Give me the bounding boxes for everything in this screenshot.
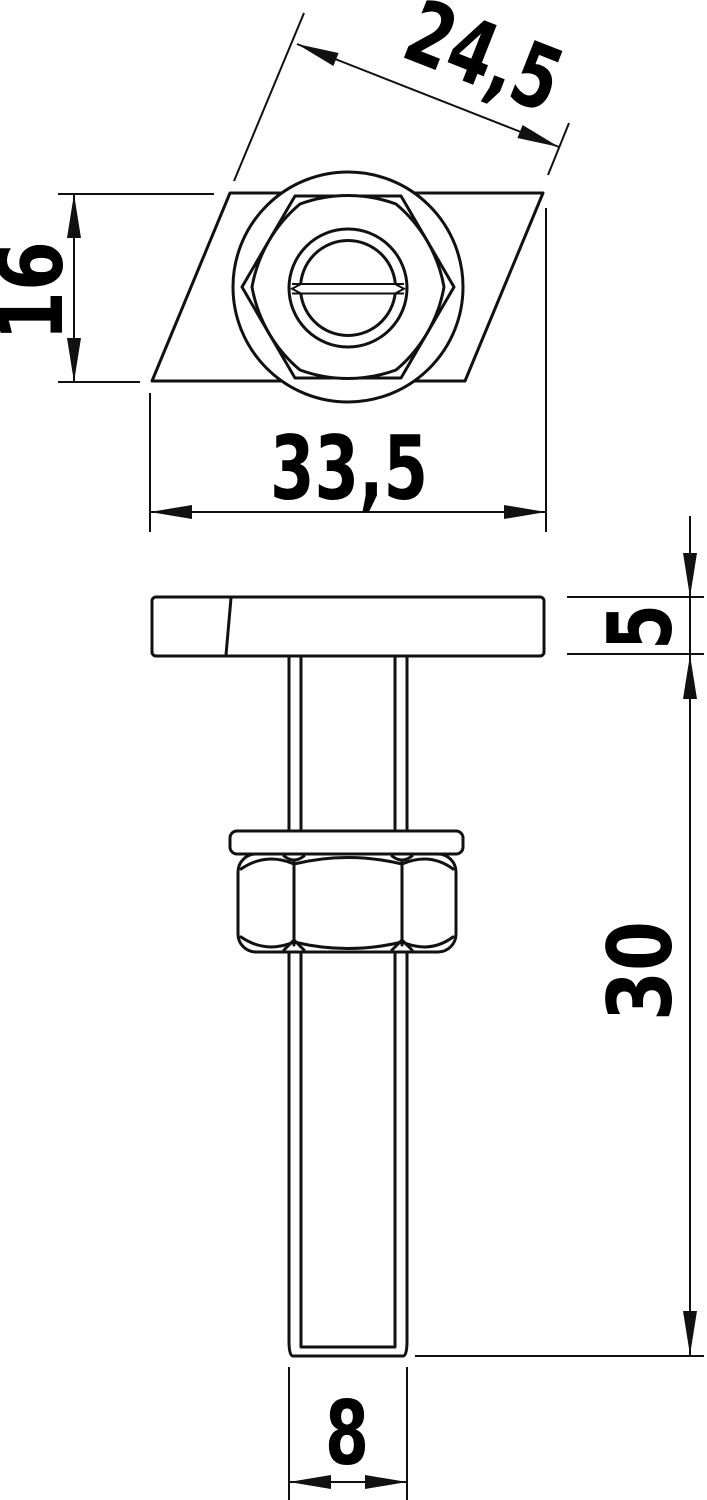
arrow-icon <box>365 1475 407 1489</box>
arrow-icon <box>504 505 546 519</box>
threaded-shaft-lower <box>289 952 407 1356</box>
arrow-icon <box>67 194 81 238</box>
technical-drawing-canvas: 24,5 16 33,5 5 <box>0 0 707 1500</box>
dim-label-diagonal-width: 24,5 <box>392 0 577 133</box>
hex-nut-side-view <box>238 854 456 952</box>
arrow-icon <box>150 505 192 519</box>
side-view <box>152 597 544 1356</box>
arrow-icon <box>683 655 697 699</box>
arrow-icon <box>683 1311 697 1355</box>
dim-thread-diameter: 8 <box>289 1367 407 1500</box>
washer-side-view <box>230 831 463 854</box>
dim-label-plate-width: 33,5 <box>270 417 428 520</box>
extension-line <box>548 123 569 175</box>
dim-plate-height: 16 <box>0 194 214 382</box>
arrow-icon <box>67 338 81 382</box>
arrow-icon <box>297 44 339 66</box>
dim-label-thread-diameter: 8 <box>325 1382 369 1485</box>
dim-bolt-length: 30 <box>415 921 704 1356</box>
dim-label-bolt-length: 30 <box>589 921 692 1021</box>
top-view <box>152 172 543 402</box>
extension-line <box>234 13 304 181</box>
dim-label-plate-thickness: 5 <box>589 604 692 650</box>
threaded-shaft-upper <box>289 657 407 831</box>
dimension-drawing: 24,5 16 33,5 5 <box>0 0 707 1500</box>
dim-diagonal-width: 24,5 <box>234 0 576 181</box>
arrow-icon <box>683 553 697 597</box>
dim-label-plate-height: 16 <box>0 241 83 341</box>
head-plate-side-view <box>152 597 544 656</box>
